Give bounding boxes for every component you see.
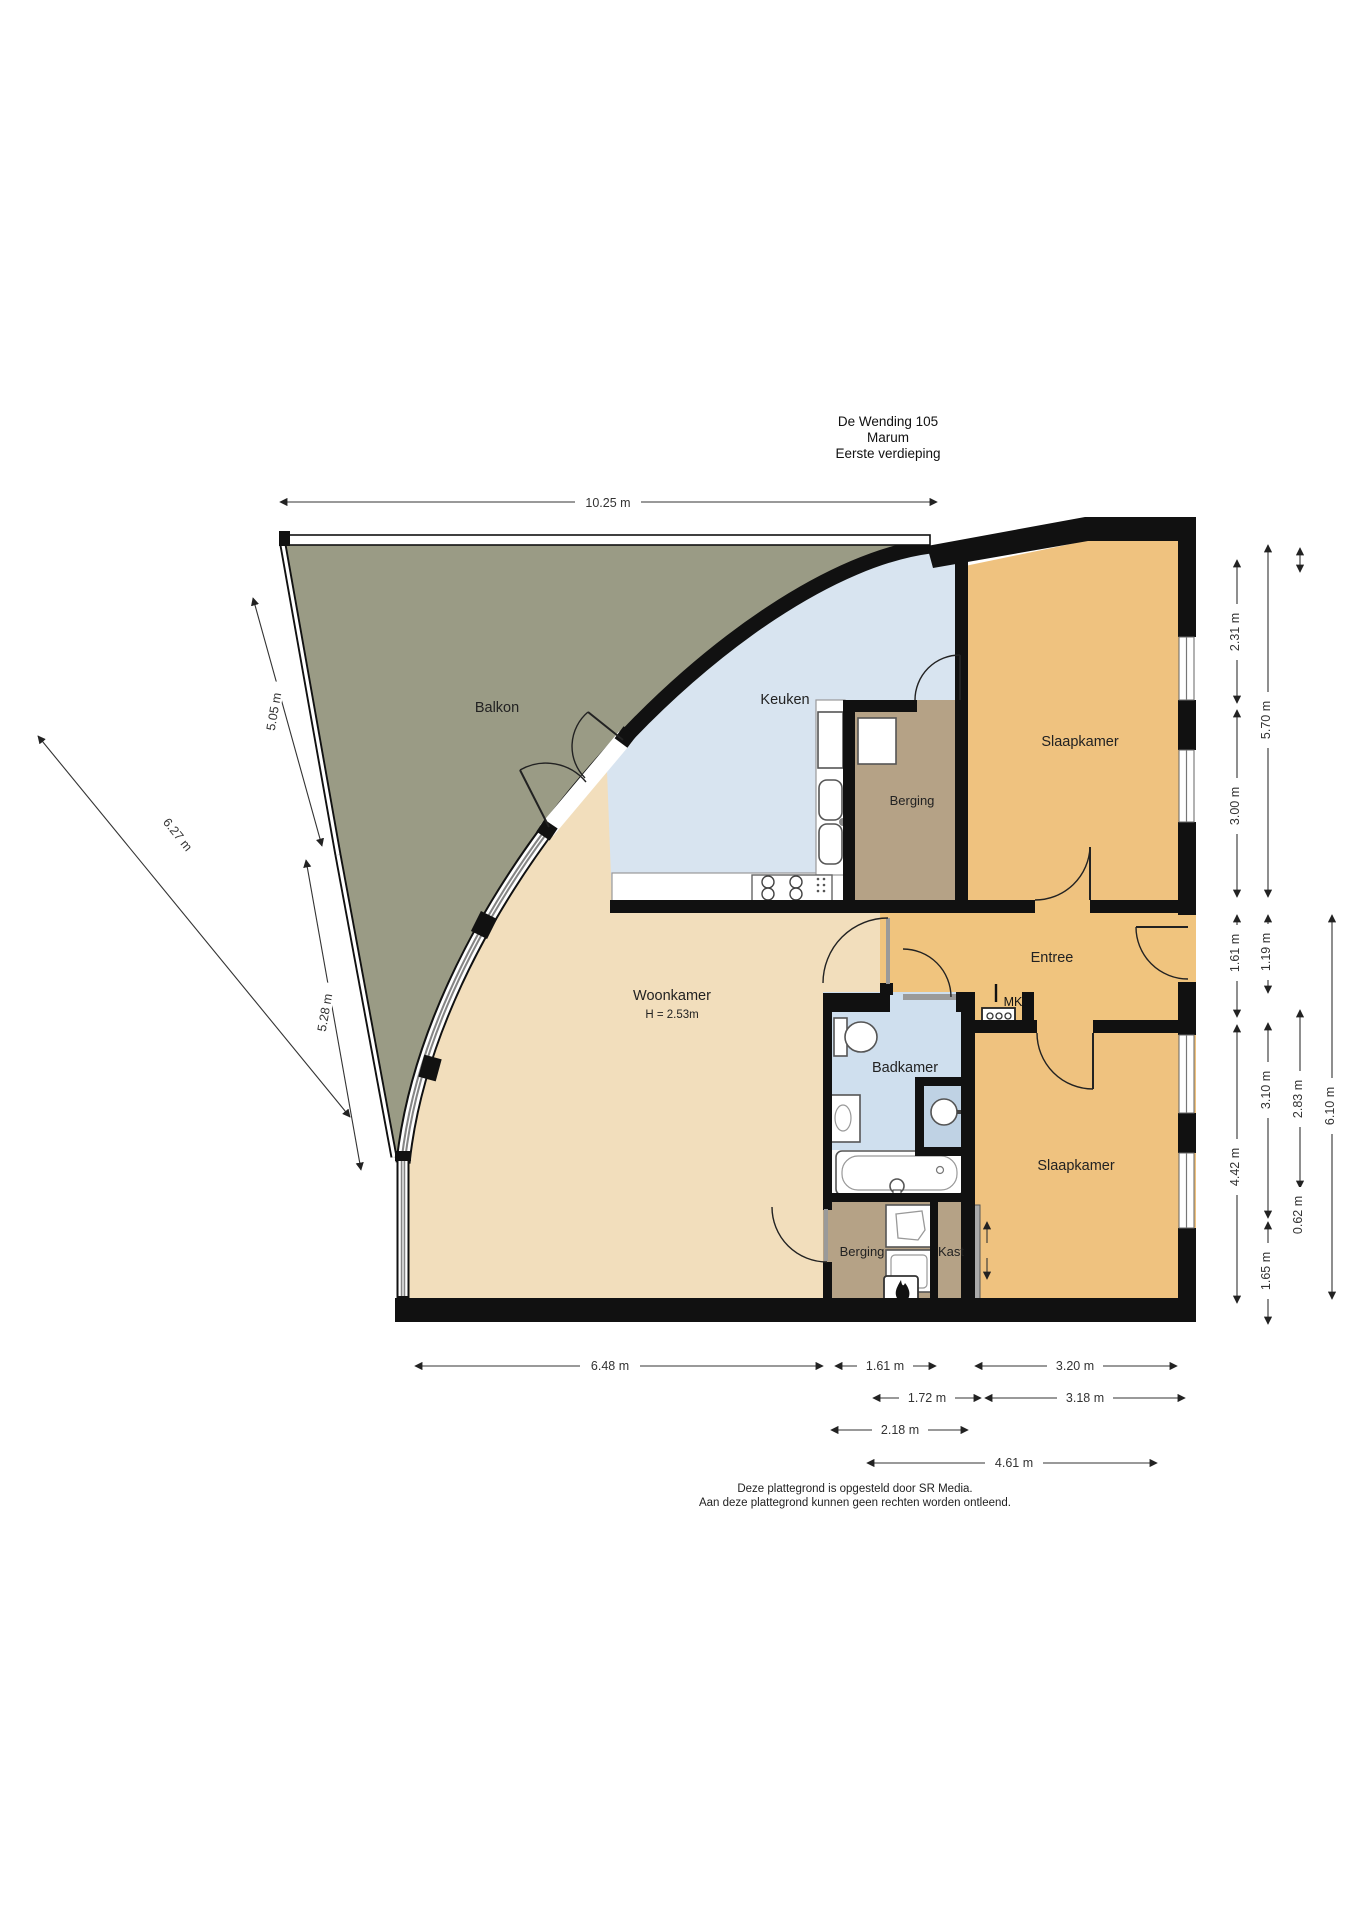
plan-title: De Wending 105 Marum Eerste verdieping — [835, 414, 940, 461]
dim-right-165: 1.65 m — [1257, 1222, 1273, 1324]
svg-text:3.00 m: 3.00 m — [1228, 787, 1242, 825]
title-line-2: Marum — [867, 430, 909, 445]
room-fills — [283, 541, 1196, 1303]
dim-right-610: 6.10 m — [1321, 915, 1337, 1299]
shower-head-icon — [931, 1099, 957, 1125]
right-wall — [1178, 517, 1196, 637]
badkamer-door — [903, 994, 956, 1000]
toilet-bowl — [845, 1022, 877, 1052]
slaapkamer-top-label: Slaapkamer — [1041, 734, 1119, 750]
berging-bottom-left-wall — [823, 1262, 832, 1304]
stove-icon — [752, 875, 832, 901]
dim-bottom-172: 1.72 m — [873, 1390, 981, 1405]
dim-right-231: 2.31 m — [1226, 560, 1242, 703]
svg-text:6.48 m: 6.48 m — [591, 1359, 629, 1373]
bathtub-drain — [937, 1167, 944, 1174]
slaapkamer-top-floor — [965, 541, 1190, 913]
door-jamb — [621, 731, 630, 743]
svg-text:3.10 m: 3.10 m — [1259, 1071, 1273, 1109]
floorplan-canvas: De Wending 105 Marum Eerste verdieping — [0, 0, 1358, 1920]
berging-kast-wall — [930, 1200, 938, 1303]
balkon-label: Balkon — [475, 700, 519, 716]
kast-label: Kast — [938, 1244, 964, 1259]
mk-label: MK — [1004, 995, 1023, 1009]
shower-wall — [915, 1077, 924, 1156]
badkamer-left-wall — [823, 993, 832, 1210]
dim-bottom-320: 3.20 m — [975, 1358, 1177, 1373]
dim-right-283: 2.83 m — [1289, 1010, 1305, 1188]
berging-bottom-label: Berging — [840, 1244, 885, 1259]
berging-top-label: Berging — [890, 793, 935, 808]
dim-bottom-648: 6.48 m — [415, 1358, 823, 1373]
svg-text:5.05 m: 5.05 m — [264, 692, 284, 732]
plan-footer: Deze plattegrond is opgesteld door SR Me… — [699, 1483, 1011, 1509]
keuken-slaapkamer-wall — [955, 545, 968, 900]
svg-text:3.18 m: 3.18 m — [1066, 1391, 1104, 1405]
dim-right-062: 0.62 m — [1289, 1187, 1305, 1243]
svg-text:2.83 m: 2.83 m — [1291, 1080, 1305, 1118]
door-jamb — [543, 824, 551, 836]
svg-text:10.25 m: 10.25 m — [585, 496, 630, 510]
floorplan-page: De Wending 105 Marum Eerste verdieping — [0, 0, 1358, 1920]
left-window — [395, 1151, 411, 1298]
svg-text:4.42 m: 4.42 m — [1228, 1148, 1242, 1186]
dim-right-300: 3.00 m — [1226, 710, 1242, 897]
dim-right-119: 1.19 m — [1257, 915, 1273, 993]
berging-bottom-left-wall — [823, 1195, 832, 1207]
svg-text:1.61 m: 1.61 m — [866, 1359, 904, 1373]
facade-pier — [427, 1057, 433, 1079]
keuken-label: Keuken — [760, 692, 809, 708]
svg-text:2.18 m: 2.18 m — [881, 1423, 919, 1437]
svg-text:2.31 m: 2.31 m — [1228, 613, 1242, 651]
footer-line-1: Deze plattegrond is opgesteld door SR Me… — [737, 1483, 972, 1495]
dim-bottom-461: 4.61 m — [867, 1455, 1157, 1470]
entree-slaapkamer-wall — [1093, 1020, 1196, 1033]
bath-nook-wall — [832, 1193, 967, 1202]
shower-wall — [915, 1147, 973, 1156]
entree-top-wall — [1090, 900, 1196, 913]
svg-text:3.20 m: 3.20 m — [1056, 1359, 1094, 1373]
woonkamer-entree-door — [886, 918, 890, 984]
entree-slaapkamer-wall — [968, 1020, 1037, 1033]
dim-left-627: 6.27 m — [38, 736, 350, 1117]
dim-bottom-318: 3.18 m — [985, 1390, 1185, 1405]
dim-right-310: 3.10 m — [1257, 1023, 1273, 1218]
svg-text:1.19 m: 1.19 m — [1259, 933, 1273, 971]
kitchen-sink-2 — [819, 824, 842, 864]
svg-text:1.61 m: 1.61 m — [1228, 934, 1242, 972]
woonkamer-height-label: H = 2.53m — [645, 1009, 698, 1021]
dim-right-570: 5.70 m — [1257, 545, 1273, 897]
badkamer-top-wall — [823, 993, 890, 1012]
facade-pier — [479, 915, 489, 935]
woonkamer-label: Woonkamer — [633, 988, 711, 1004]
berging-bottom-door — [824, 1209, 828, 1261]
right-wall — [1178, 700, 1196, 750]
berging-top-cupboard — [858, 718, 896, 764]
berging-left-wall — [843, 700, 855, 900]
dim-right-442: 4.42 m — [1226, 1025, 1242, 1303]
svg-text:0.62 m: 0.62 m — [1291, 1196, 1305, 1234]
badkamer-label: Badkamer — [872, 1060, 938, 1076]
kitchen-appliance — [818, 712, 843, 768]
right-wall — [1178, 1113, 1196, 1153]
svg-text:6.10 m: 6.10 m — [1323, 1087, 1337, 1125]
dim-bottom-161: 1.61 m — [835, 1358, 936, 1373]
title-line-3: Eerste verdieping — [835, 446, 940, 461]
svg-text:4.61 m: 4.61 m — [995, 1456, 1033, 1470]
kitchen-entree-wall — [610, 900, 1035, 913]
footer-line-2: Aan deze plattegrond kunnen geen rechten… — [699, 1497, 1011, 1509]
svg-text:5.28 m: 5.28 m — [315, 993, 335, 1033]
bathroom-sink-basin — [835, 1105, 851, 1131]
dim-right-161: 1.61 m — [1226, 915, 1242, 1017]
kitchen-sink-1 — [819, 780, 842, 820]
title-line-1: De Wending 105 — [838, 414, 938, 429]
bottom-wall — [395, 1298, 1196, 1322]
dim-top-1025: 10.25 m — [280, 494, 937, 510]
svg-text:1.65 m: 1.65 m — [1259, 1252, 1273, 1290]
dim-bottom-218: 2.18 m — [831, 1422, 968, 1437]
slaapkamer-bottom-label: Slaapkamer — [1037, 1158, 1115, 1174]
entree-label: Entree — [1031, 950, 1074, 966]
svg-text:1.72 m: 1.72 m — [908, 1391, 946, 1405]
svg-text:5.70 m: 5.70 m — [1259, 701, 1273, 739]
